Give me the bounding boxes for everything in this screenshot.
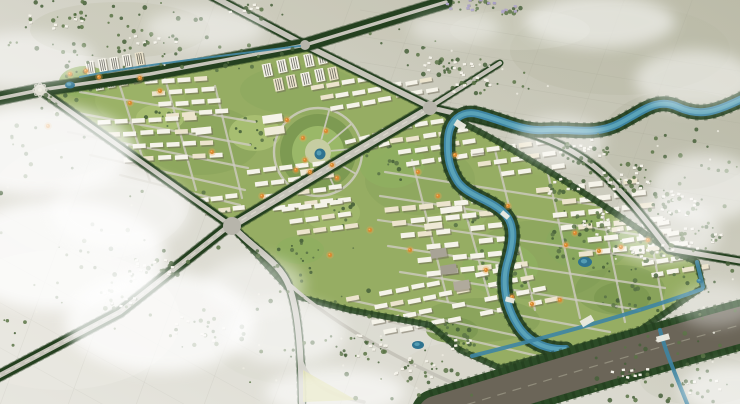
rendering-canvas [0, 0, 740, 404]
masterplan-aerial-rendering [0, 0, 740, 404]
